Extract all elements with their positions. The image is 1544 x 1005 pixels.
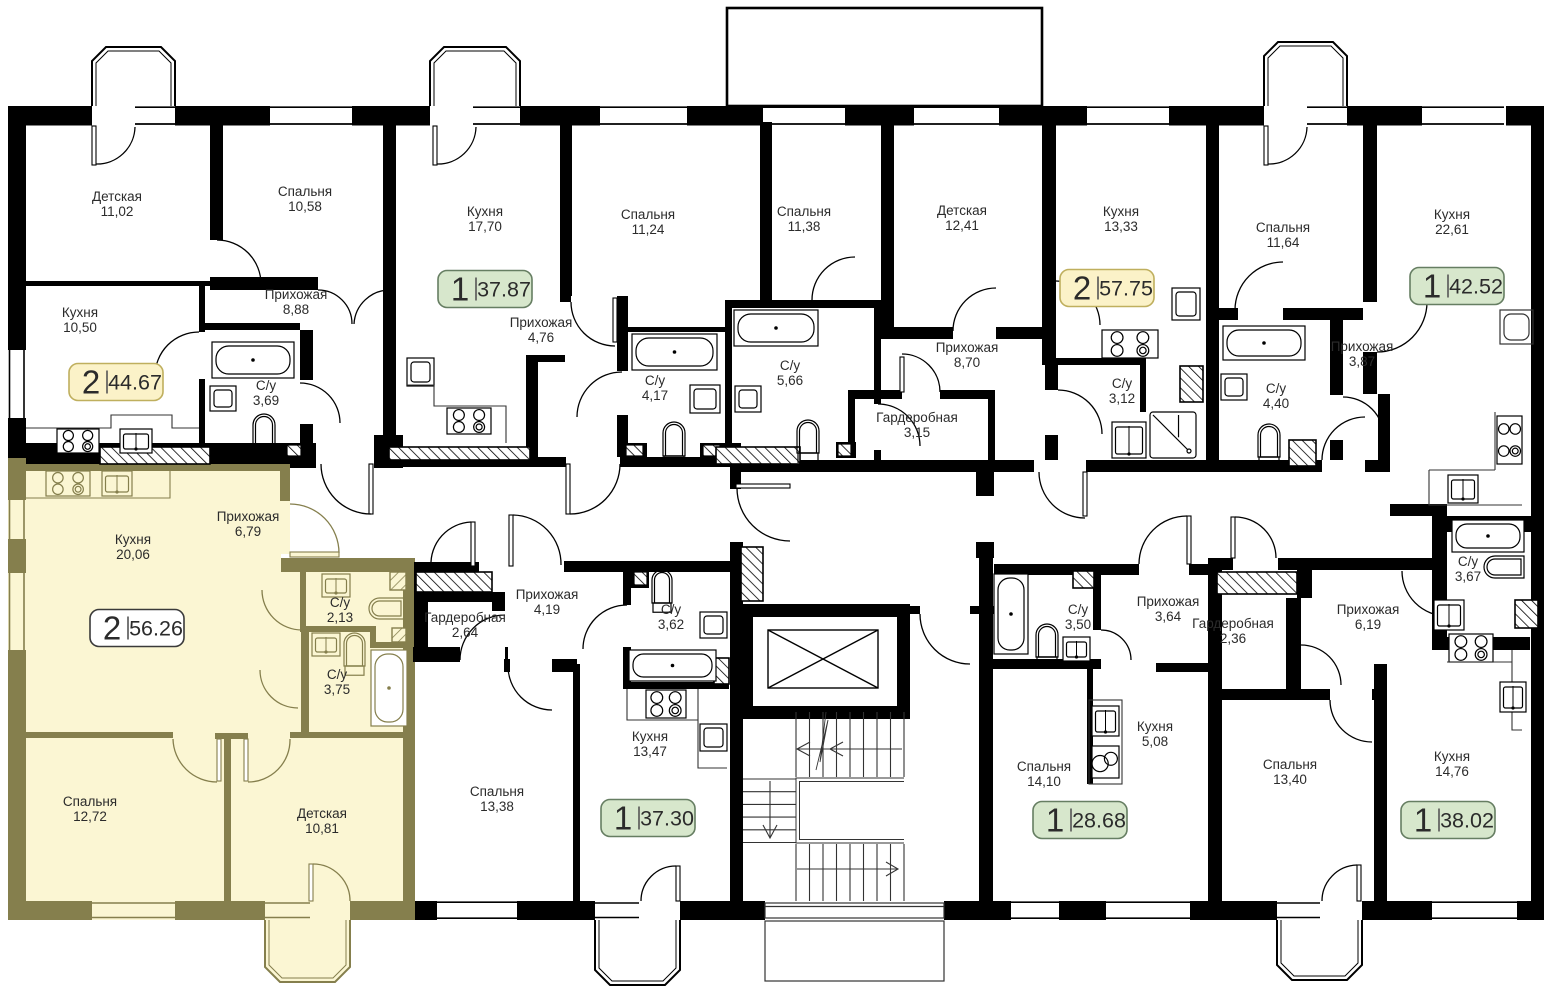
svg-text:Прихожая: Прихожая bbox=[936, 340, 999, 355]
svg-text:20,06: 20,06 bbox=[116, 547, 150, 562]
svg-text:Прихожая: Прихожая bbox=[510, 315, 573, 330]
svg-text:Прихожая: Прихожая bbox=[217, 509, 280, 524]
svg-text:Кухня: Кухня bbox=[1434, 207, 1470, 222]
svg-text:Гардеробная: Гардеробная bbox=[876, 410, 958, 425]
svg-text:1: 1 bbox=[1414, 802, 1432, 839]
svg-text:2,13: 2,13 bbox=[327, 610, 353, 625]
svg-text:3,67: 3,67 bbox=[1455, 569, 1481, 584]
svg-text:Спальня: Спальня bbox=[1017, 759, 1071, 774]
svg-text:8,70: 8,70 bbox=[954, 355, 980, 370]
svg-text:17,70: 17,70 bbox=[468, 219, 502, 234]
svg-text:3,64: 3,64 bbox=[1155, 609, 1182, 624]
svg-text:Кухня: Кухня bbox=[1137, 719, 1173, 734]
svg-text:11,02: 11,02 bbox=[101, 204, 134, 219]
svg-text:3,62: 3,62 bbox=[658, 617, 684, 632]
svg-text:Спальня: Спальня bbox=[63, 794, 117, 809]
svg-text:Кухня: Кухня bbox=[1103, 204, 1139, 219]
svg-text:2,64: 2,64 bbox=[452, 625, 479, 640]
svg-text:Кухня: Кухня bbox=[632, 729, 668, 744]
svg-text:11,64: 11,64 bbox=[1267, 235, 1300, 250]
svg-text:Кухня: Кухня bbox=[115, 532, 151, 547]
svg-text:10,81: 10,81 bbox=[305, 821, 339, 836]
svg-text:Прихожая: Прихожая bbox=[1331, 339, 1394, 354]
svg-text:2: 2 bbox=[82, 364, 100, 401]
svg-text:38.02: 38.02 bbox=[1440, 809, 1494, 833]
svg-text:С/у: С/у bbox=[256, 378, 277, 393]
svg-text:1: 1 bbox=[1423, 268, 1441, 305]
svg-text:4,40: 4,40 bbox=[1263, 396, 1289, 411]
svg-text:57.75: 57.75 bbox=[1099, 277, 1153, 301]
svg-text:С/у: С/у bbox=[780, 358, 801, 373]
svg-text:56.26: 56.26 bbox=[129, 617, 183, 641]
svg-text:Гардеробная: Гардеробная bbox=[1192, 616, 1274, 631]
svg-text:Спальня: Спальня bbox=[1256, 220, 1310, 235]
svg-text:37.87: 37.87 bbox=[477, 278, 531, 302]
svg-text:13,40: 13,40 bbox=[1273, 772, 1307, 787]
svg-text:С/у: С/у bbox=[1112, 376, 1133, 391]
svg-text:Кухня: Кухня bbox=[467, 204, 503, 219]
svg-text:Прихожая: Прихожая bbox=[1137, 594, 1200, 609]
svg-text:1: 1 bbox=[1046, 802, 1064, 839]
svg-text:37.30: 37.30 bbox=[640, 807, 694, 831]
svg-text:11,38: 11,38 bbox=[788, 219, 821, 234]
svg-text:2,36: 2,36 bbox=[1220, 631, 1246, 646]
svg-text:Прихожая: Прихожая bbox=[516, 587, 579, 602]
svg-text:13,38: 13,38 bbox=[480, 799, 514, 814]
svg-text:С/у: С/у bbox=[1068, 602, 1089, 617]
svg-text:С/у: С/у bbox=[330, 595, 351, 610]
svg-text:Кухня: Кухня bbox=[62, 305, 98, 320]
svg-text:Спальня: Спальня bbox=[470, 784, 524, 799]
svg-text:28.68: 28.68 bbox=[1072, 809, 1126, 833]
svg-text:2: 2 bbox=[1073, 270, 1091, 307]
svg-text:3,15: 3,15 bbox=[904, 425, 930, 440]
svg-text:12,41: 12,41 bbox=[945, 218, 979, 233]
svg-text:6,79: 6,79 bbox=[235, 524, 261, 539]
svg-text:Спальня: Спальня bbox=[278, 184, 332, 199]
svg-text:Детская: Детская bbox=[297, 806, 347, 821]
svg-text:С/у: С/у bbox=[1266, 381, 1287, 396]
svg-text:С/у: С/у bbox=[1458, 554, 1479, 569]
svg-text:Спальня: Спальня bbox=[1263, 757, 1317, 772]
svg-text:11,24: 11,24 bbox=[632, 222, 665, 237]
svg-text:С/у: С/у bbox=[661, 602, 682, 617]
svg-text:Гардеробная: Гардеробная bbox=[424, 610, 506, 625]
svg-text:13,47: 13,47 bbox=[633, 744, 667, 759]
svg-text:Спальня: Спальня bbox=[777, 204, 831, 219]
svg-text:2: 2 bbox=[103, 610, 121, 647]
svg-text:14,10: 14,10 bbox=[1027, 774, 1061, 789]
svg-text:12,72: 12,72 bbox=[73, 809, 107, 824]
svg-text:5,66: 5,66 bbox=[777, 373, 803, 388]
svg-text:Спальня: Спальня bbox=[621, 207, 675, 222]
svg-text:4,76: 4,76 bbox=[528, 330, 554, 345]
svg-text:3,69: 3,69 bbox=[253, 393, 279, 408]
svg-text:3,12: 3,12 bbox=[1109, 391, 1135, 406]
svg-text:3,50: 3,50 bbox=[1065, 617, 1091, 632]
svg-text:3,75: 3,75 bbox=[324, 682, 350, 697]
svg-text:10,50: 10,50 bbox=[63, 320, 97, 335]
svg-text:42.52: 42.52 bbox=[1449, 275, 1503, 299]
svg-text:С/у: С/у bbox=[327, 667, 348, 682]
svg-text:Прихожая: Прихожая bbox=[265, 287, 328, 302]
svg-text:С/у: С/у bbox=[645, 373, 666, 388]
svg-text:Детская: Детская bbox=[937, 203, 987, 218]
svg-text:4,17: 4,17 bbox=[642, 388, 668, 403]
svg-text:5,08: 5,08 bbox=[1142, 734, 1168, 749]
svg-text:3,87: 3,87 bbox=[1349, 354, 1375, 369]
svg-text:14,76: 14,76 bbox=[1435, 764, 1469, 779]
svg-text:1: 1 bbox=[451, 271, 469, 308]
svg-text:Прихожая: Прихожая bbox=[1337, 602, 1400, 617]
svg-text:10,58: 10,58 bbox=[288, 199, 322, 214]
svg-text:Кухня: Кухня bbox=[1434, 749, 1470, 764]
svg-text:44.67: 44.67 bbox=[108, 371, 162, 395]
svg-text:22,61: 22,61 bbox=[1435, 222, 1469, 237]
svg-text:13,33: 13,33 bbox=[1104, 219, 1138, 234]
svg-text:1: 1 bbox=[614, 800, 632, 837]
svg-text:Детская: Детская bbox=[92, 189, 142, 204]
svg-text:6,19: 6,19 bbox=[1355, 617, 1381, 632]
svg-text:4,19: 4,19 bbox=[534, 602, 560, 617]
svg-text:8,88: 8,88 bbox=[283, 302, 309, 317]
